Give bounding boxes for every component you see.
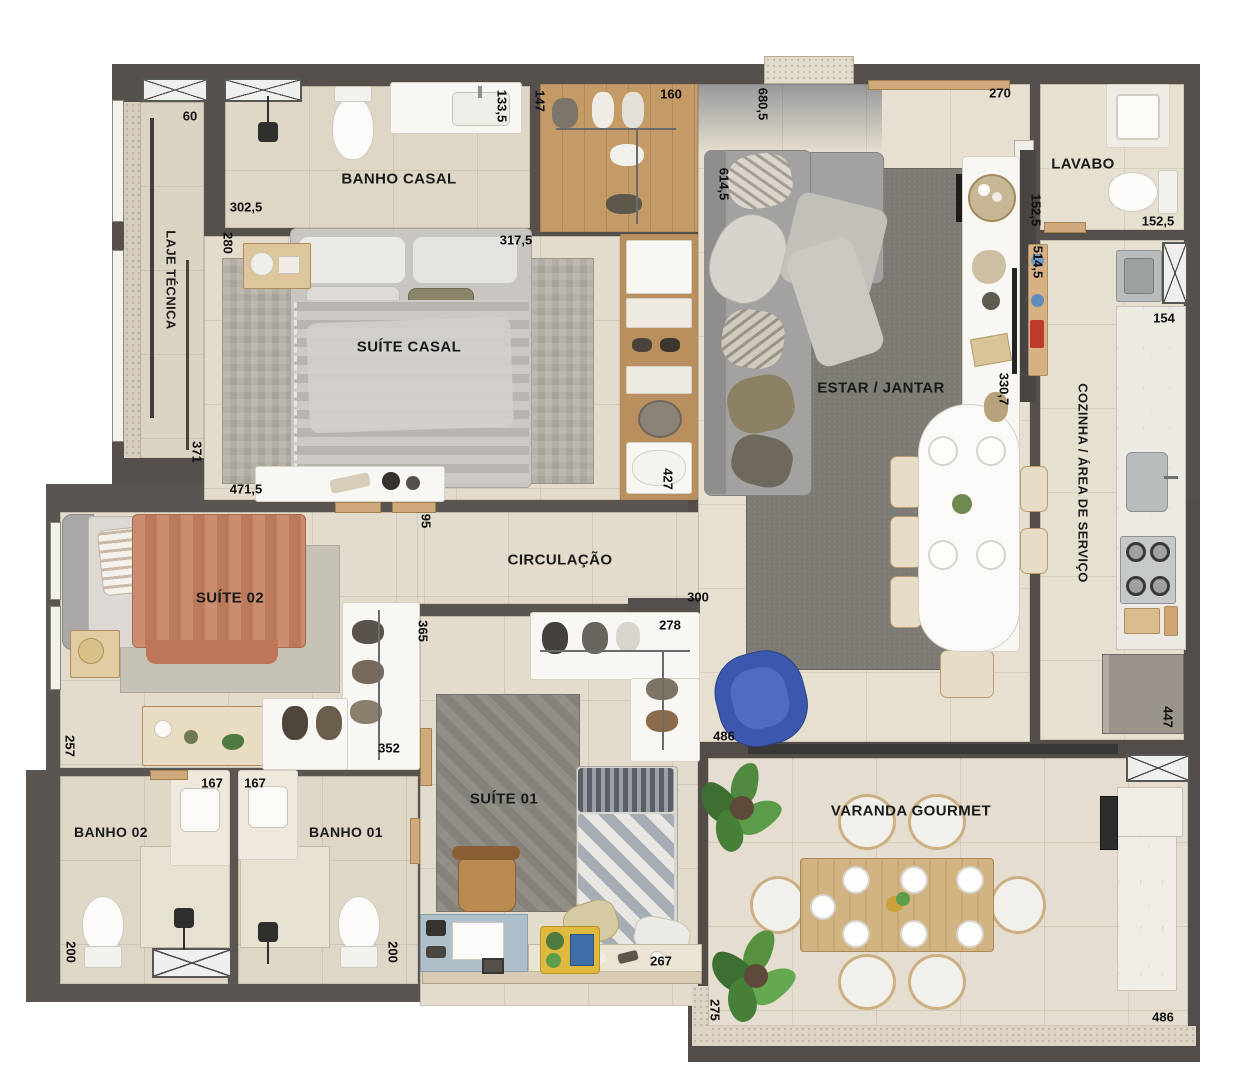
room-label-varanda: VARANDA GOURMET [831,804,991,819]
window-laje-2 [112,250,124,442]
dim-270: 270 [989,87,1011,100]
desk-suite-01 [420,914,526,970]
dim-275: 275 [709,999,722,1021]
dim-257: 257 [64,735,77,757]
window-top-2 [224,78,302,102]
toilet-tank-banho-02 [84,946,122,968]
wardrobe-shelf-1 [626,298,692,328]
closet-casal-rail-2 [636,128,638,224]
room-label-suite-01: SUÍTE 01 [470,792,538,807]
dim-267: 267 [650,955,672,968]
dim-300: 300 [687,591,709,604]
varanda-terrazzo-left [692,986,708,1030]
room-label-banho-casal: BANHO CASAL [341,172,456,187]
closet-casal-rail-1 [556,128,676,130]
dim-147: 147 [534,90,547,112]
dim-447: 447 [1162,706,1175,728]
dim-278: 278 [659,619,681,632]
dim-154: 154 [1153,312,1175,325]
dining-plate-1 [928,436,958,466]
dresser-decor-suite-02 [150,712,254,756]
dim-427: 427 [662,468,675,490]
dim-280: 280 [222,232,235,254]
sink-banho-01 [248,786,288,828]
window-varanda [1126,754,1190,782]
toilet-banho-casal [332,96,374,160]
dining-chair-right-2 [1020,528,1048,574]
balcony-slab-top [764,56,854,84]
chair-suite-01 [448,846,524,916]
dim-60: 60 [183,110,197,123]
tray-suite-01 [540,926,598,972]
door-banho-01 [410,818,420,864]
dim-471-5: 471,5 [230,483,263,496]
dim-514-5: 514,5 [1032,246,1045,279]
laje-pipe-1 [150,118,154,418]
window-cozinha [1162,242,1188,304]
shower-head-banho-02 [174,908,194,928]
room-label-suite-casal: SUÍTE CASAL [357,340,461,355]
dim-365: 365 [417,620,430,642]
room-label-estar-jantar: ESTAR / JANTAR [817,381,945,396]
dining-plate-4 [976,540,1006,570]
closet-casal-clothes [548,90,688,220]
door-suite-01 [420,728,432,786]
door-suite-casal [392,502,436,513]
room-label-circulacao: CIRCULAÇÃO [508,553,613,568]
kitchen-faucet [1164,476,1178,479]
door-suite-02 [335,502,381,513]
dim-152-5-left: 152,5 [1030,194,1043,227]
sliding-door-varanda [748,744,1118,754]
toilet-tank-banho-casal [334,86,372,102]
island-decor [964,166,1016,466]
varanda-plate-4 [842,920,870,948]
plant-varanda-top [702,762,782,857]
room-label-lavabo: LAVABO [1051,157,1115,172]
plant-varanda-bottom [714,928,796,1023]
varanda-terrazzo-border [692,1026,1196,1046]
varanda-chair-bottom-1 [838,954,896,1010]
room-label-cozinha: COZINHA / ÁREA DE SERVIÇO [1077,383,1090,582]
dim-486-estar: 486 [713,730,735,743]
dining-centerpiece [952,494,972,514]
nightstand-decor [248,248,304,282]
shower-area-banho-01 [240,846,330,948]
closet-suite-01-clothes [538,618,694,754]
varanda-chair-bottom-2 [908,954,966,1010]
stove-burner-1 [1126,542,1146,562]
stove-burner-4 [1150,576,1170,596]
slab-left-notch [26,770,60,1002]
dim-167-banho02: 167 [201,777,223,790]
shower-head-banho-casal [258,122,278,142]
wardrobe-pillow [630,446,686,488]
tv-island-right [1012,268,1017,374]
toilet-tank-lavabo [1158,170,1178,214]
window-suite02-2 [50,606,61,690]
dim-200-banho02: 200 [65,941,78,963]
closet-suite-02-clothes [268,608,412,760]
floor-plan: BANHO CASAL SUÍTE CASAL LAJE TÉCNICA CIR… [0,0,1236,1080]
wardrobe-basket [632,398,684,436]
stove-burner-2 [1150,542,1170,562]
sofa-estar [704,150,884,494]
room-label-suite-02: SUÍTE 02 [196,591,264,606]
tv-island-left [956,174,962,222]
faucet-banho-casal [478,86,482,98]
dim-614-5: 614,5 [718,168,731,201]
sink-banho-02 [180,788,220,832]
toilet-tank-banho-01 [340,946,378,968]
dim-352: 352 [378,742,400,755]
dim-486-varanda: 486 [1152,1011,1174,1024]
shower-stem-banho-02 [183,928,185,950]
dim-133-5: 133,5 [496,90,509,123]
bed-suite-01 [576,766,676,952]
varanda-plate-head [810,894,836,920]
bed-suite-casal [290,228,530,486]
dim-95: 95 [420,514,433,528]
varanda-counter-step [1117,787,1183,837]
wardrobe-shelf-2 [626,366,692,394]
dim-167-banho01: 167 [244,777,266,790]
grill [1100,796,1118,850]
varanda-plate-6 [956,920,984,948]
dim-371: 371 [191,441,204,463]
varanda-plate-3 [956,866,984,894]
wardrobe-drawers [626,240,692,294]
shower-stem-banho-01 [267,942,269,964]
laje-pipe-2 [186,260,189,450]
varanda-plate-1 [842,866,870,894]
dim-302-5: 302,5 [230,201,263,214]
toilet-lavabo [1108,172,1158,212]
dining-chair-bottom [940,650,994,698]
dim-152-5-bottom: 152,5 [1142,215,1175,228]
wardrobe-shoes [626,332,690,360]
dining-chair-right-1 [1020,466,1048,512]
closet-suite-01-rail-h [540,650,690,652]
window-laje-1 [112,100,124,222]
closet-suite-01-rail-v [662,650,664,750]
window-banho-02 [152,948,232,978]
service-sink-basin [1124,258,1154,294]
shower-stem-banho-casal [267,96,269,122]
laje-terrazzo-strip [124,102,140,458]
estar-window-shadow [698,84,882,154]
dim-160: 160 [660,88,682,101]
dining-plate-2 [976,436,1006,466]
varanda-chair-right [990,876,1046,934]
varanda-fruit [886,892,912,916]
window-suite02-1 [50,522,61,600]
kitchen-sink [1126,452,1168,512]
lamp-suite-02 [78,638,102,662]
dim-680-5: 680,5 [757,88,770,121]
toilet-banho-01 [338,896,380,952]
sink-lavabo [1116,94,1160,140]
knife-block [1164,606,1178,636]
closet-suite-02-rail [378,610,380,760]
bench-decor [330,470,430,496]
dim-317-5: 317,5 [500,234,533,247]
varanda-plate-2 [900,866,928,894]
dim-200-banho01: 200 [387,941,400,963]
room-label-banho-02: BANHO 02 [74,825,148,839]
door-banho-02 [150,770,188,780]
room-label-banho-01: BANHO 01 [309,825,383,839]
room-label-laje-tecnica: LAJE TÉCNICA [165,230,178,329]
stove-burner-3 [1126,576,1146,596]
dim-330-7: 330,7 [998,373,1011,406]
window-top-1 [142,78,208,102]
shower-head-banho-01 [258,922,278,942]
dining-plate-3 [928,540,958,570]
cutting-board [1124,608,1160,634]
varanda-plate-5 [900,920,928,948]
door-lavabo [1044,222,1086,233]
toilet-banho-02 [82,896,124,952]
varanda-chair-left [750,876,806,934]
